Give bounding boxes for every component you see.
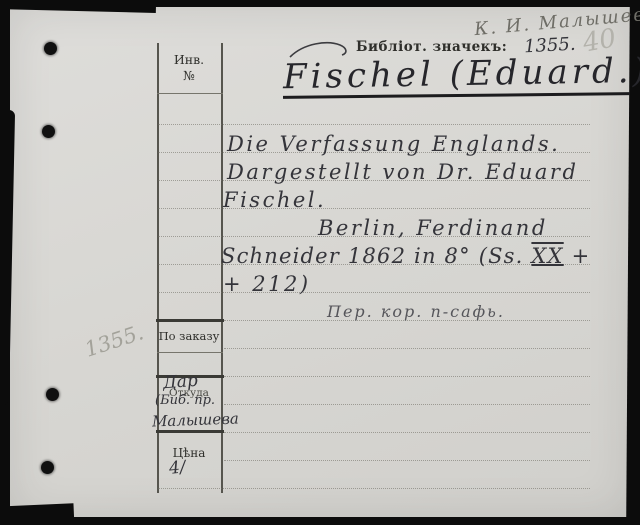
ruled-line	[224, 376, 590, 377]
title-line: Die Verfassung Englands.	[227, 132, 560, 156]
library-mark-label: Библіот. значекъ:	[356, 39, 507, 55]
ruled-line	[224, 404, 590, 405]
binding-note: Пер. кор. п-сафь.	[327, 302, 505, 321]
punch-hole	[42, 125, 55, 138]
roman-page-count: XX	[531, 244, 563, 268]
price-value-handwriting: 4/	[168, 457, 187, 479]
origin-handwriting: Дар	[162, 371, 198, 393]
imprint-line: + 212)	[223, 272, 311, 296]
inventory-box-line	[157, 93, 223, 94]
order-box-bottom-line	[157, 352, 223, 353]
scanned-catalog-card-page: К. И. Малышевъ 40 Библіот. значекъ: 1355…	[0, 0, 640, 525]
punch-hole	[41, 461, 54, 474]
ruled-line	[224, 460, 590, 461]
punch-hole	[46, 388, 59, 401]
price-label: Цѣна	[156, 446, 222, 460]
imprint-text: +	[564, 244, 591, 268]
ruled-line	[158, 124, 590, 125]
order-box-top-line	[156, 319, 224, 322]
origin-box-bottom-line	[156, 430, 224, 433]
imprint-line: Schneider 1862 in 8° (Ss. XX +	[221, 244, 590, 268]
title-line: Dargestellt von Dr. Eduard	[227, 160, 578, 184]
inventory-label-line: №	[156, 68, 222, 84]
ruled-line	[224, 348, 590, 349]
author-heading: Fischel (Eduard.)	[283, 51, 640, 97]
origin-handwriting: (Биб. пр.	[155, 393, 215, 408]
origin-handwriting: Малышева	[152, 409, 239, 430]
title-line: Fischel.	[223, 188, 326, 212]
inventory-label-line: Инв.	[156, 52, 222, 68]
imprint-line: Berlin, Ferdinand	[318, 216, 548, 240]
ruled-line	[224, 432, 590, 433]
scan-edge-bottom-left	[0, 503, 74, 525]
punch-hole	[44, 42, 57, 55]
imprint-text: Schneider 1862 in 8° (Ss.	[221, 244, 531, 268]
inventory-number-label: Инв. №	[156, 52, 222, 84]
order-label: По заказу	[156, 329, 222, 343]
ruled-line	[158, 488, 590, 489]
